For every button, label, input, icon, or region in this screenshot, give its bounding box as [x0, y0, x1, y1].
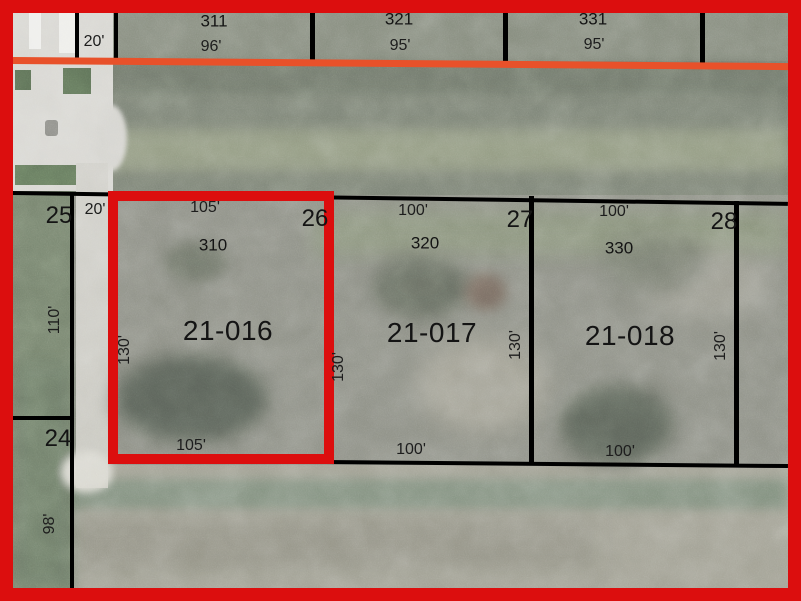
lot-tick-line: [310, 13, 315, 61]
parcel-id-label: 21-016: [183, 317, 273, 345]
front-width-label: 100': [398, 203, 428, 219]
lot-number-label: 26: [302, 207, 329, 231]
address-label: 330: [605, 240, 633, 257]
rear-width-label: 100': [605, 444, 635, 460]
scrub-band-mid: [13, 61, 788, 195]
depth-label: 110': [47, 306, 63, 335]
depth-label: 130': [331, 352, 347, 382]
tree-shadow-cluster: [371, 255, 471, 319]
frontage-label: 96': [201, 39, 222, 55]
parcel-id-label: 21-017: [387, 319, 477, 347]
sandy-patch: [638, 248, 768, 318]
south-green-swale: [13, 479, 788, 509]
west-lot-line: [70, 192, 74, 588]
rear-width-label: 100': [396, 442, 426, 458]
parcel-id-label: 21-018: [585, 322, 675, 350]
front-width-label: 105': [190, 200, 220, 216]
hedge-strip: [15, 165, 91, 185]
pavement-edge-bump: [95, 105, 127, 171]
address-label: 311: [200, 13, 227, 30]
depth-label: 98': [42, 514, 58, 535]
frontage-label: 95': [390, 38, 411, 54]
hedge-patch: [15, 70, 31, 90]
parcel-divider-line-017-018: [529, 196, 534, 464]
west-grass-field-lower: [13, 363, 73, 588]
frontage-label: 95': [584, 37, 605, 53]
reddish-ground-patch: [465, 273, 507, 311]
parcel-east-line-018: [734, 201, 739, 466]
strip-width-label: 20': [85, 202, 106, 218]
lot-tick-line: [503, 13, 508, 63]
parcel-map-viewport: 20' 311 96' 321 95' 331 95' 25 20' 110' …: [0, 0, 801, 601]
lot-number-label: 28: [711, 210, 738, 234]
hedge-patch: [63, 68, 91, 94]
depth-label: 130': [117, 335, 133, 365]
lot-tick-line: [114, 13, 118, 60]
south-field-band: [13, 465, 788, 588]
depth-label: 130': [508, 330, 524, 360]
rear-width-label: 105': [176, 438, 206, 454]
depth-label: 130': [713, 331, 729, 361]
address-label: 321: [385, 11, 413, 28]
address-label: 331: [579, 11, 607, 28]
lot-number-label: 24: [45, 427, 72, 451]
address-label: 320: [411, 235, 439, 252]
address-label: 310: [199, 237, 227, 254]
map-border-top: [0, 0, 801, 13]
road-end-pad: [61, 451, 113, 493]
lot-number-label: 25: [46, 204, 73, 228]
south-field-shadow: [73, 518, 593, 570]
lot-tick-line: [700, 13, 705, 64]
map-border-right: [788, 0, 801, 601]
dirt-path-band: [13, 129, 788, 171]
lot-number-label: 27: [507, 208, 534, 232]
pavement-marking: [45, 120, 58, 136]
corner-width-label: 20': [84, 34, 105, 50]
lot24-boundary-line: [13, 416, 72, 420]
building-edge: [29, 13, 41, 49]
map-border-left: [0, 0, 13, 601]
lot-tick-line: [75, 13, 79, 59]
map-border-bottom: [0, 588, 801, 601]
front-width-label: 100': [599, 204, 629, 220]
